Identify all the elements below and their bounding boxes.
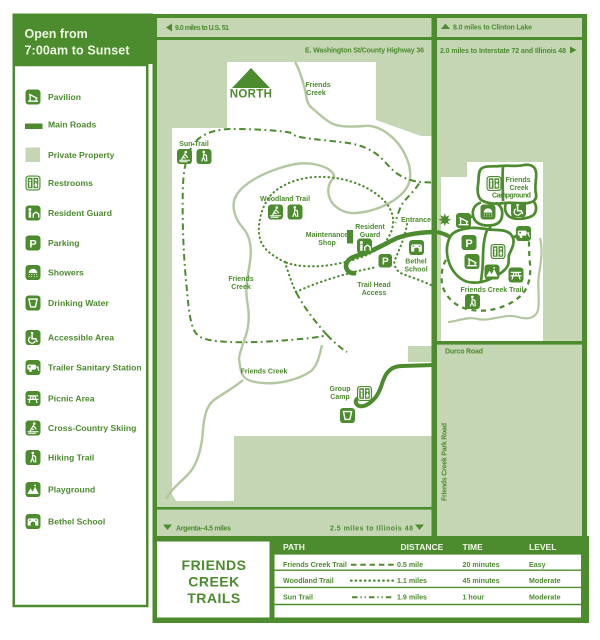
svg-text:Creek: Creek — [306, 90, 326, 97]
svg-text:Trailer Sanitary Station: Trailer Sanitary Station — [48, 363, 142, 373]
svg-text:Entrance: Entrance — [401, 217, 431, 224]
svg-text:Shop: Shop — [318, 240, 336, 247]
svg-text:Friends Creek Park Road: Friends Creek Park Road — [442, 423, 449, 501]
svg-text:Friends Creek Trail: Friends Creek Trail — [283, 561, 347, 569]
svg-text:Sun Trail: Sun Trail — [179, 141, 209, 148]
svg-text:Bethel: Bethel — [405, 259, 426, 266]
svg-text:Picnic Area: Picnic Area — [48, 394, 95, 404]
svg-text:Campground: Campground — [492, 193, 531, 200]
svg-text:Showers: Showers — [48, 268, 84, 278]
svg-text:School: School — [404, 267, 427, 274]
svg-text:NORTH: NORTH — [230, 89, 272, 101]
svg-text:8.0 miles to Clinton Lake: 8.0 miles to Clinton Lake — [453, 25, 532, 32]
svg-text:DISTANCE: DISTANCE — [401, 542, 444, 552]
svg-text:Group: Group — [330, 386, 351, 393]
svg-text:1.1 miles: 1.1 miles — [397, 577, 427, 585]
svg-text:9.0 miles to U.S. 51: 9.0 miles to U.S. 51 — [175, 25, 229, 32]
svg-text:Durco Road: Durco Road — [445, 349, 483, 356]
svg-text:LEVEL: LEVEL — [529, 542, 556, 552]
svg-text:Bethel School: Bethel School — [48, 517, 105, 527]
svg-text:Camp: Camp — [330, 394, 349, 401]
svg-text:Friends: Friends — [506, 177, 531, 184]
svg-text:Pavilion: Pavilion — [48, 92, 81, 102]
svg-text:Easy: Easy — [529, 561, 546, 569]
svg-text:Open from: Open from — [25, 27, 88, 41]
svg-text:Woodland Trail: Woodland Trail — [283, 577, 334, 585]
svg-text:1.9 miles: 1.9 miles — [397, 594, 427, 602]
svg-text:CREEK: CREEK — [188, 574, 240, 590]
svg-text:TRAILS: TRAILS — [187, 590, 241, 606]
svg-text:Resident: Resident — [355, 224, 385, 231]
svg-text:Trail Head: Trail Head — [357, 282, 390, 289]
svg-text:Argenta–4.5 miles: Argenta–4.5 miles — [176, 526, 231, 533]
svg-text:2.5 miles to Illinois 48: 2.5 miles to Illinois 48 — [330, 526, 413, 533]
svg-text:Main Roads: Main Roads — [48, 120, 96, 130]
svg-text:Accessible Area: Accessible Area — [48, 333, 114, 343]
svg-text:Maintenance: Maintenance — [306, 232, 349, 239]
svg-text:E. Washington St/County Highwa: E. Washington St/County Highway 36 — [305, 48, 424, 55]
svg-text:Access: Access — [362, 290, 387, 297]
svg-text:Playground: Playground — [48, 485, 95, 495]
svg-text:Moderate: Moderate — [529, 594, 561, 602]
svg-text:FRIENDS: FRIENDS — [182, 557, 247, 573]
svg-text:7:00am to Sunset: 7:00am to Sunset — [25, 44, 131, 58]
svg-text:2.0 miles to Interstate 72 and: 2.0 miles to Interstate 72 and Illinois … — [440, 48, 566, 55]
svg-text:Guard: Guard — [360, 232, 381, 239]
svg-text:Sun Trail: Sun Trail — [283, 594, 313, 602]
svg-text:Hiking Trail: Hiking Trail — [48, 453, 94, 463]
svg-text:Friends Creek: Friends Creek — [241, 369, 288, 376]
svg-text:1 hour: 1 hour — [463, 594, 485, 602]
svg-text:45 minutes: 45 minutes — [463, 577, 500, 585]
svg-text:0.5 mile: 0.5 mile — [397, 561, 423, 569]
svg-text:Parking: Parking — [48, 238, 80, 248]
svg-text:Friends: Friends — [228, 276, 253, 283]
svg-text:PATH: PATH — [283, 542, 305, 552]
svg-text:Drinking Water: Drinking Water — [48, 298, 109, 308]
svg-text:Restrooms: Restrooms — [48, 178, 93, 188]
svg-text:Creek: Creek — [231, 284, 251, 291]
svg-text:TIME: TIME — [463, 542, 484, 552]
svg-text:Cross-Country Skiing: Cross-Country Skiing — [48, 423, 136, 433]
svg-text:Moderate: Moderate — [529, 577, 561, 585]
svg-text:Friends: Friends — [305, 82, 330, 89]
svg-text:Woodland Trail: Woodland Trail — [260, 196, 310, 203]
svg-text:Friends Creek Trail: Friends Creek Trail — [460, 287, 523, 294]
svg-text:Resident Guard: Resident Guard — [48, 208, 112, 218]
svg-text:Creek: Creek — [510, 185, 529, 192]
svg-text:Private Property: Private Property — [48, 150, 115, 160]
svg-text:20 minutes: 20 minutes — [463, 561, 500, 569]
